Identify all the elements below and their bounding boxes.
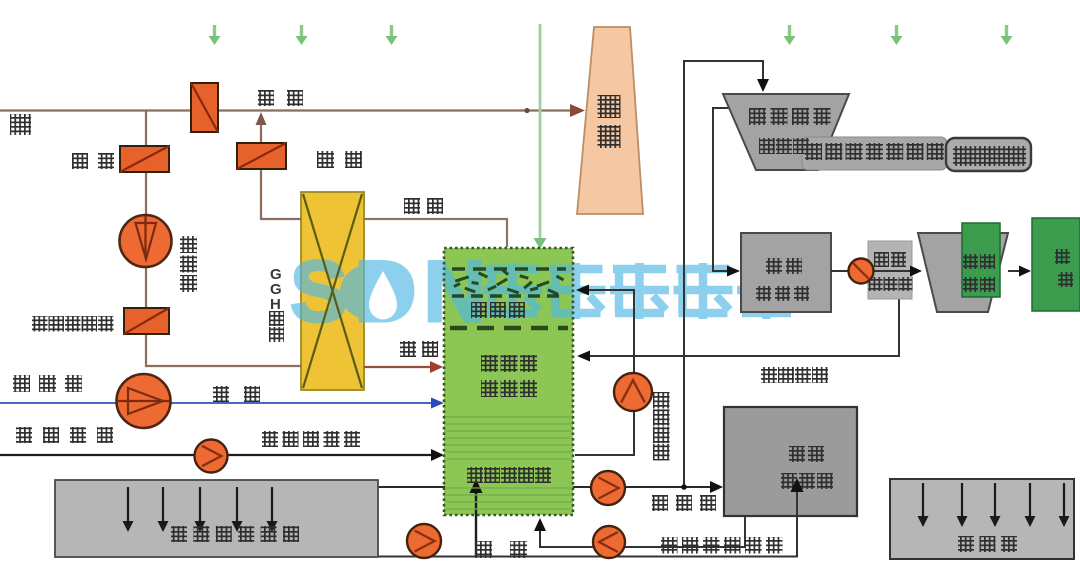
svg-text:H: H [270,296,281,313]
